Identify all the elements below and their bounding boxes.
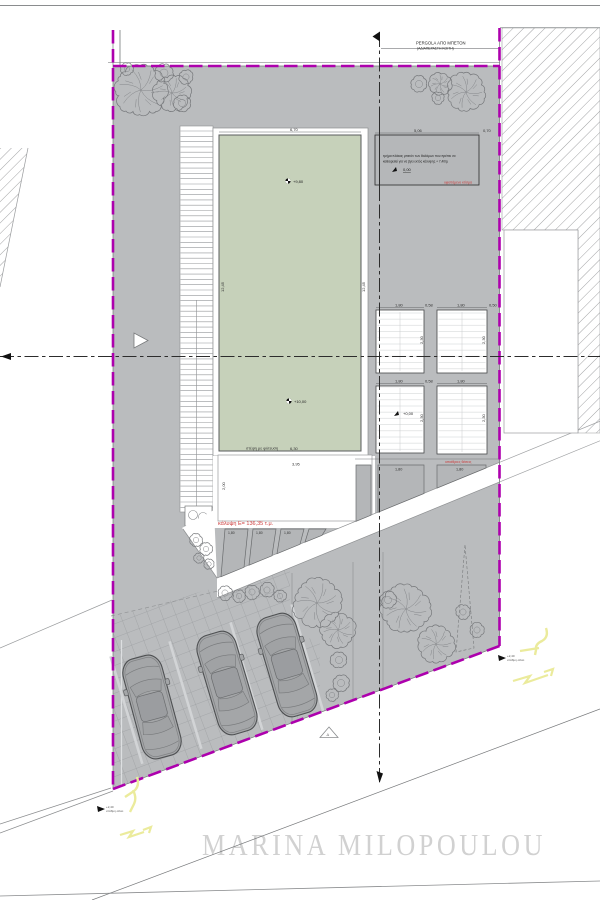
svg-text:2,30: 2,30 (481, 413, 486, 422)
svg-text:0,50: 0,50 (489, 303, 498, 308)
svg-text:1,80: 1,80 (228, 531, 235, 535)
svg-text:0,00: 0,00 (403, 167, 412, 172)
svg-text:(ΑΔΙΑΠΕΡΑΣΤΗ ΚΟΙΤΗ): (ΑΔΙΑΠΕΡΑΣΤΗ ΚΟΙΤΗ) (417, 47, 454, 51)
svg-text:κάλυψη E= 136,35 τ.μ.: κάλυψη E= 136,35 τ.μ. (218, 520, 274, 527)
svg-text:Δ: Δ (327, 732, 330, 737)
svg-text:1,80: 1,80 (395, 303, 404, 308)
svg-text:12,45: 12,45 (361, 281, 366, 292)
svg-text:στάθμη οδού: στάθμη οδού (106, 809, 124, 813)
svg-text:τμήμα πλάκας μπετόν των θαλάμω: τμήμα πλάκας μπετόν των θαλάμων που πρέπ… (383, 154, 456, 158)
svg-text:2,30: 2,30 (481, 335, 486, 344)
svg-text:6,70: 6,70 (290, 127, 299, 132)
svg-text:υφιστάμενο κτίσμα: υφιστάμενο κτίσμα (444, 181, 472, 185)
svg-text:1,80: 1,80 (457, 379, 466, 384)
svg-text:στάθμη οδού: στάθμη οδού (507, 658, 525, 662)
svg-text:5,06: 5,06 (414, 128, 423, 133)
svg-text:2,00: 2,00 (221, 481, 226, 490)
svg-text:2,30: 2,30 (419, 335, 424, 344)
svg-text:υπαίθριες θέσεις: υπαίθριες θέσεις (445, 460, 472, 464)
svg-text:1,80: 1,80 (456, 468, 463, 472)
svg-text:6,30: 6,30 (290, 446, 299, 451)
svg-text:1,80: 1,80 (395, 379, 404, 384)
svg-text:1,80: 1,80 (284, 531, 291, 535)
svg-text:0,70: 0,70 (483, 128, 492, 133)
svg-text:PERGOLA ΑΠΟ ΜΠΕΤΟΝ: PERGOLA ΑΠΟ ΜΠΕΤΟΝ (416, 41, 466, 46)
svg-text:2,30: 2,30 (419, 413, 424, 422)
svg-text:MARINA MILOPOULOU: MARINA MILOPOULOU (202, 827, 546, 862)
svg-text:0,58: 0,58 (425, 303, 434, 308)
svg-text:στέψη με φύτευση: στέψη με φύτευση (246, 446, 278, 451)
svg-text:1,80: 1,80 (395, 468, 402, 472)
svg-text:3,95: 3,95 (292, 462, 301, 467)
svg-text:1,80: 1,80 (256, 531, 263, 535)
svg-text:+10,00: +10,00 (294, 399, 307, 404)
svg-text:12,45: 12,45 (220, 281, 225, 292)
svg-text:0,58: 0,58 (425, 379, 434, 384)
svg-text:καθαιρεθεί για να βγει εκτός κ: καθαιρεθεί για να βγει εκτός κάλυψης + 7… (383, 160, 448, 164)
svg-text:+9,80: +9,80 (293, 179, 304, 184)
svg-text:+0,00: +0,00 (403, 411, 414, 416)
svg-text:1,80: 1,80 (457, 303, 466, 308)
